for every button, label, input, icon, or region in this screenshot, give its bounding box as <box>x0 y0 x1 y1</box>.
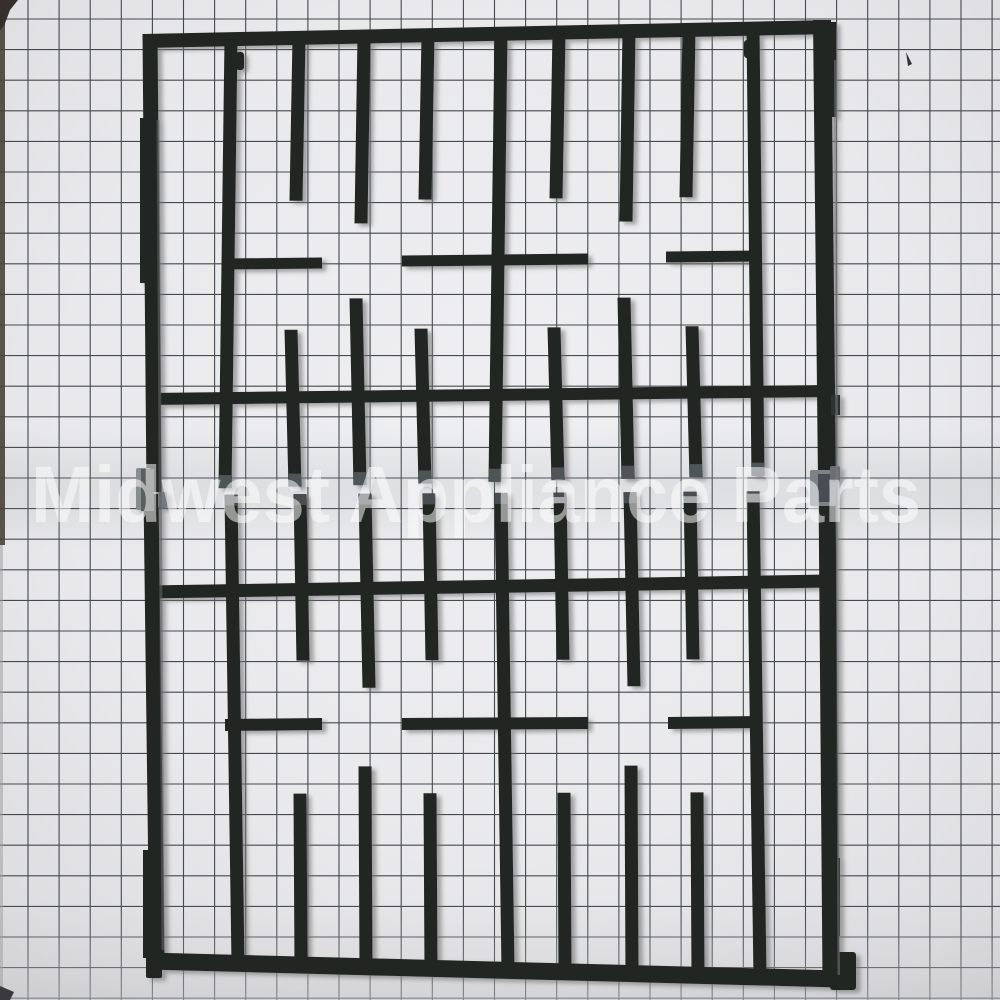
svg-text:Midwest Appliance Parts: Midwest Appliance Parts <box>31 450 921 539</box>
